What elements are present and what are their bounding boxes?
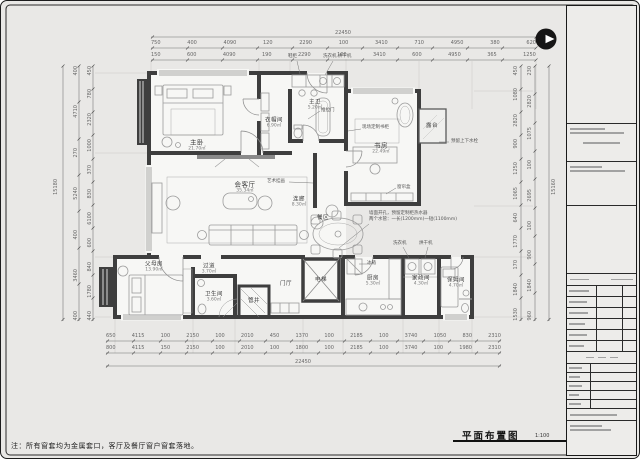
- dim-value: 2150: [186, 346, 199, 351]
- dim-value: 3740: [405, 334, 418, 339]
- drawing-scale: 1:100: [535, 433, 549, 439]
- dim-value: 5240: [74, 187, 79, 200]
- table-cell: [567, 400, 591, 408]
- dim-value: 3410: [375, 41, 388, 46]
- room-label-study: 书房22.49㎡: [372, 143, 389, 156]
- room-label-living-room: 会客厅35.34㎡: [235, 182, 256, 195]
- table-cell: [567, 286, 597, 296]
- dim-value: 4090: [224, 41, 237, 46]
- dim-value: 2695: [528, 189, 533, 202]
- table-cell: [567, 373, 591, 381]
- table-row: [567, 373, 636, 382]
- table-cell: [567, 341, 597, 351]
- table-row: [567, 308, 636, 319]
- dim-value: 2150: [186, 334, 199, 339]
- dim-top-total: 22450: [335, 30, 351, 36]
- dim-value: 4090: [223, 53, 236, 58]
- title-block: [566, 5, 637, 456]
- dim-value: 2290: [299, 41, 312, 46]
- dim-value: 840: [88, 262, 93, 272]
- table-cell: [567, 364, 591, 372]
- dim-value: 100: [215, 334, 225, 339]
- room-label-foyer: 门厅: [280, 281, 292, 287]
- dim-right-total: 15160: [551, 179, 557, 195]
- dim-value: 100: [215, 346, 225, 351]
- text-bar: [570, 128, 605, 130]
- title-block-table: [567, 286, 636, 352]
- dim-value: 4115: [132, 346, 145, 351]
- dim-value: 1050: [434, 334, 447, 339]
- dim-value: 100: [339, 41, 349, 46]
- table-cell: [597, 286, 623, 296]
- text-bar: [570, 166, 602, 168]
- dim-value: 100: [528, 160, 533, 170]
- dim-value: 4710: [74, 105, 79, 118]
- dim-row-bottom-1: 6504115100215010020104501370100218510037…: [106, 334, 501, 339]
- table-row: [567, 391, 636, 400]
- dim-value: 100: [379, 334, 389, 339]
- dim-value: 400: [74, 66, 79, 76]
- table-cell: [597, 319, 623, 329]
- north-arrow-icon: [536, 29, 557, 50]
- dim-value: 600: [88, 238, 93, 248]
- table-cell: [623, 297, 636, 307]
- dim-col-right-2: 2302820107510026951009001840960: [525, 66, 535, 321]
- dim-value: 830: [88, 189, 93, 199]
- room-label-laundry: 家政间4.30㎡: [412, 275, 430, 286]
- dim-value: 1080: [514, 88, 519, 101]
- table-cell: [623, 341, 636, 351]
- text-bar: [569, 385, 582, 387]
- text-bar: [569, 403, 581, 405]
- title-block-sign-row: [567, 352, 636, 364]
- title-block-project-info: [567, 162, 636, 206]
- dim-col-left-1: 400471027052404003460400: [71, 66, 81, 321]
- table-cell: [623, 286, 636, 296]
- text-bar: [570, 132, 624, 134]
- table-cell: [623, 319, 636, 329]
- dim-value: 2185: [350, 346, 363, 351]
- dim-value: 1770: [514, 235, 519, 248]
- text-bar: [570, 279, 589, 281]
- dim-col-left-2: 4507802320100037083061006008401780440: [85, 66, 95, 321]
- dim-value: 380: [490, 41, 500, 46]
- title-block-sheet-row: [567, 274, 636, 286]
- dim-value: 150: [161, 346, 171, 351]
- dim-value: 1780: [88, 285, 93, 298]
- table-cell: [597, 341, 623, 351]
- dim-value: 370: [88, 165, 93, 175]
- title-block-firm-info: [567, 124, 636, 162]
- dim-row-top-1: 7504004090120229010034107104950380620: [151, 41, 536, 46]
- title-block-spare: [567, 206, 636, 274]
- table-cell: [567, 319, 597, 329]
- dim-value: 1840: [528, 279, 533, 292]
- dim-value: 2310: [488, 334, 501, 339]
- dim-value: 100: [324, 334, 334, 339]
- table-row: [567, 330, 636, 341]
- floor-plan-drawing: [1, 1, 640, 459]
- table-row: [567, 382, 636, 391]
- dim-value: 2290: [298, 53, 311, 58]
- text-bar: [569, 312, 588, 314]
- table-cell: [567, 297, 597, 307]
- table-cell: [591, 391, 636, 399]
- annotation-dryer: 烘干机: [419, 241, 433, 247]
- dim-value: 100: [161, 334, 171, 339]
- dim-value: 1250: [523, 53, 536, 58]
- text-bar: [570, 170, 625, 172]
- dim-value: 3740: [405, 346, 418, 351]
- table-cell: [591, 373, 636, 381]
- dim-value: 4115: [132, 334, 145, 339]
- text-bar: [569, 367, 582, 369]
- dim-value: 4950: [448, 53, 461, 58]
- dim-value: 2010: [241, 346, 254, 351]
- table-cell: [567, 308, 597, 318]
- dim-col-right-1: 4501080282090012501065640177017018401530: [511, 66, 521, 321]
- dim-value: 100: [528, 221, 533, 231]
- room-label-elevator: 电梯: [315, 277, 327, 283]
- dim-value: 640: [514, 213, 519, 223]
- text-bar: [586, 357, 594, 359]
- dim-value: 100: [324, 346, 334, 351]
- dim-value: 900: [528, 250, 533, 260]
- table-cell: [623, 330, 636, 340]
- dim-value: 1980: [459, 346, 472, 351]
- dim-value: 450: [514, 66, 519, 76]
- dim-value: 1800: [295, 346, 308, 351]
- title-block-sign-table: [567, 364, 636, 409]
- dim-value: 3410: [373, 53, 386, 58]
- table-cell: [623, 308, 636, 318]
- dim-value: 620: [526, 41, 536, 46]
- room-label-hallway: 过道3.70㎡: [202, 263, 217, 274]
- table-cell: [591, 364, 636, 372]
- dim-value: 2010: [241, 334, 254, 339]
- room-label-corridor: 连廊8.30㎡: [292, 196, 307, 207]
- table-row: [567, 319, 636, 330]
- dim-value: 270: [74, 148, 79, 158]
- dim-value: 1840: [514, 283, 519, 296]
- room-label-dining-area: 餐区: [317, 215, 329, 221]
- text-bar: [569, 394, 579, 396]
- text-bar: [570, 425, 602, 427]
- table-cell: [597, 330, 623, 340]
- dim-value: 1530: [514, 308, 519, 321]
- dim-bottom-total: 22450: [295, 359, 311, 365]
- dim-value: 120: [263, 41, 273, 46]
- dim-value: 100: [270, 346, 280, 351]
- room-label-parents-room: 父母房13.90㎡: [145, 261, 163, 272]
- annotation-curtain-box: 窗帘盒: [397, 185, 411, 191]
- dim-value: 830: [462, 334, 472, 339]
- table-cell: [567, 330, 597, 340]
- dim-value: 2820: [514, 114, 519, 127]
- annotation-washing-machine: 洗衣机: [393, 241, 407, 247]
- general-note: 注：所有窗套均为金属套口，客厅及餐厅窗户窗套落地。: [11, 441, 199, 451]
- dim-value: 2820: [528, 95, 533, 108]
- table-row: [567, 341, 636, 352]
- dim-value: 600: [187, 53, 197, 58]
- drawing-title-underline: [453, 440, 567, 442]
- dim-value: 6100: [88, 212, 93, 225]
- text-bar: [598, 357, 606, 359]
- dim-value: 400: [187, 41, 197, 46]
- table-cell: [591, 382, 636, 390]
- dim-value: 2185: [350, 334, 363, 339]
- dim-value: 440: [88, 311, 93, 321]
- dim-value: 1075: [528, 127, 533, 140]
- dim-value: 650: [106, 334, 116, 339]
- annotation-custom-bookcase: 现场定制书柜: [362, 125, 389, 131]
- dim-value: 230: [528, 66, 533, 76]
- annotation-kitchen-note: 墙面开孔，预留定制柜热水器 两个水管：一长(1200mm)一短(1100mm): [369, 211, 457, 222]
- table-cell: [567, 391, 591, 399]
- dim-value: 750: [151, 41, 161, 46]
- dim-value: 170: [514, 260, 519, 270]
- text-bar: [610, 357, 618, 359]
- dim-value: 450: [88, 66, 93, 76]
- dim-value: 1000: [88, 139, 93, 152]
- dim-value: 3460: [74, 269, 79, 282]
- dim-value: 1370: [295, 334, 308, 339]
- room-label-master-bedroom: 主卧21.70㎡: [188, 140, 205, 153]
- dim-value: 800: [106, 346, 116, 351]
- table-cell: [567, 382, 591, 390]
- text-bar: [611, 279, 633, 281]
- room-label-bathroom: 卫生间3.60㎡: [205, 291, 223, 302]
- title-block-logo-area: [567, 6, 636, 124]
- table-row: [567, 400, 636, 409]
- text-bar: [569, 301, 587, 303]
- table-row: [567, 364, 636, 373]
- dim-value: 190: [262, 53, 272, 58]
- room-label-nanny-room: 保姆间4.70㎡: [447, 277, 465, 288]
- dim-row-bottom-2: 8004115150215010020101001800100218510037…: [106, 346, 501, 351]
- table-cell: [591, 400, 636, 408]
- dim-value: 2320: [88, 113, 93, 126]
- text-bar: [569, 290, 589, 292]
- dim-value: 780: [88, 89, 93, 99]
- room-label-kitchen: 厨房5.30㎡: [366, 275, 381, 286]
- room-label-terrace: 露台: [426, 123, 438, 129]
- dim-row-top-2: 15060040901902290100341060049503651250: [151, 53, 536, 58]
- annotation-fridge: 冰箱: [367, 261, 376, 267]
- dim-value: 400: [74, 230, 79, 240]
- dim-value: 600: [412, 53, 422, 58]
- dim-value: 450: [270, 334, 280, 339]
- text-bar: [583, 142, 621, 144]
- dim-value: 2310: [488, 346, 501, 351]
- dim-value: 150: [151, 53, 161, 58]
- dim-value: 100: [379, 346, 389, 351]
- text-bar: [569, 323, 585, 325]
- text-bar: [570, 429, 611, 431]
- annotation-sliding-door: 推拉门: [321, 108, 335, 114]
- table-cell: [597, 297, 623, 307]
- dim-value: 100: [337, 53, 347, 58]
- drawing-sheet: 主卧21.70㎡ 衣帽间6.90㎡ 主卫5.20㎡ 书房22.49㎡ 露台 会客…: [0, 0, 640, 459]
- dim-left-total: 15180: [53, 179, 59, 195]
- table-row: [567, 297, 636, 308]
- annotation-art-painting: 艺术挂画: [267, 179, 285, 185]
- dim-value: 4950: [451, 41, 464, 46]
- dim-value: 900: [514, 139, 519, 149]
- title-block-project-number: [567, 409, 636, 421]
- room-label-cloakroom: 衣帽间6.90㎡: [265, 117, 283, 128]
- dim-value: 400: [74, 311, 79, 321]
- text-bar: [569, 376, 580, 378]
- room-label-pipe-shaft: 管井: [248, 298, 260, 304]
- title-block-drawing-name: [567, 421, 636, 455]
- dim-value: 100: [434, 346, 444, 351]
- dim-value: 1250: [514, 162, 519, 175]
- text-bar: [569, 345, 584, 347]
- dim-value: 960: [528, 311, 533, 321]
- dim-value: 1065: [514, 187, 519, 200]
- text-bar: [570, 414, 617, 416]
- table-cell: [597, 308, 623, 318]
- annotation-water-outlet: 预留上下水栓: [451, 139, 478, 145]
- dim-value: 365: [487, 53, 497, 58]
- dim-value: 710: [414, 41, 424, 46]
- text-bar: [569, 334, 587, 336]
- table-row: [567, 286, 636, 297]
